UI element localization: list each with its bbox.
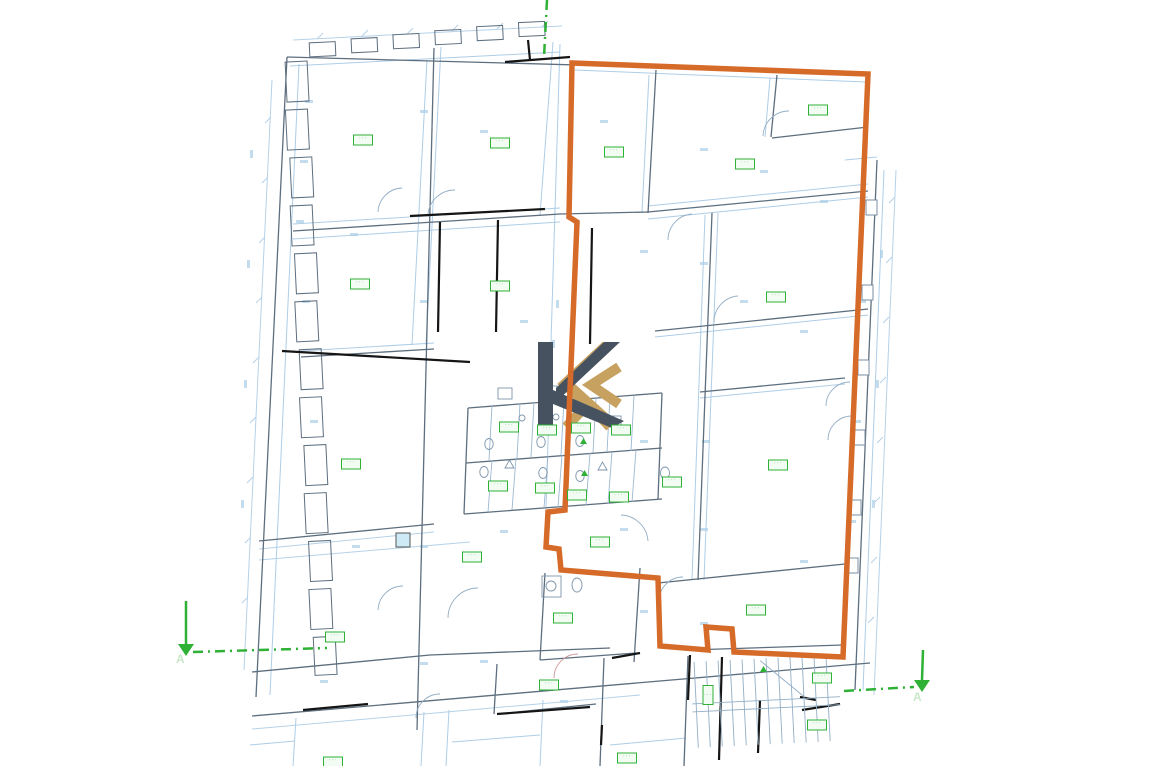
room-label: ··· xyxy=(617,753,637,764)
room-label: ··· xyxy=(462,552,482,563)
door-arcs xyxy=(378,111,852,718)
room-label: ··· xyxy=(539,680,559,691)
room-label: ··· xyxy=(609,492,629,503)
floor-plan-drawing xyxy=(0,0,1152,766)
room-label: ··· xyxy=(341,459,361,470)
logo-k-monogram xyxy=(538,342,624,428)
room-label: ··· xyxy=(353,135,373,146)
floor-plan-canvas: ········································… xyxy=(0,0,1152,766)
room-label: ··· xyxy=(490,138,510,149)
room-label: ··· xyxy=(325,632,345,643)
room-label: ··· xyxy=(350,279,370,290)
room-label: ··· xyxy=(499,422,519,433)
left-wall-piers xyxy=(282,21,576,675)
room-label: ··· xyxy=(604,147,624,158)
room-label: ··· xyxy=(323,757,343,766)
room-label: ··· xyxy=(807,720,827,731)
cyan-marker-square xyxy=(396,533,410,547)
green-triangle-marks xyxy=(580,438,767,672)
room-label: ··· xyxy=(537,425,557,436)
room-label: ··· xyxy=(490,281,510,292)
room-label: ··· xyxy=(703,685,714,705)
section-letter-right: A xyxy=(913,690,922,704)
room-label: ··· xyxy=(735,159,755,170)
room-label: ··· xyxy=(662,477,682,488)
room-label: ··· xyxy=(535,483,555,494)
room-label: ··· xyxy=(611,425,631,436)
room-label: ··· xyxy=(746,605,766,616)
section-letter-left: A xyxy=(176,652,185,666)
room-label: ··· xyxy=(590,537,610,548)
room-label: ··· xyxy=(553,613,573,624)
room-label: ··· xyxy=(567,490,587,501)
room-label: ··· xyxy=(768,460,788,471)
room-label: ··· xyxy=(812,673,832,684)
room-label: ··· xyxy=(488,481,508,492)
room-label: ··· xyxy=(766,292,786,303)
room-label: ··· xyxy=(808,105,828,116)
room-label: ··· xyxy=(571,423,591,434)
logo-dark-k xyxy=(538,342,624,428)
